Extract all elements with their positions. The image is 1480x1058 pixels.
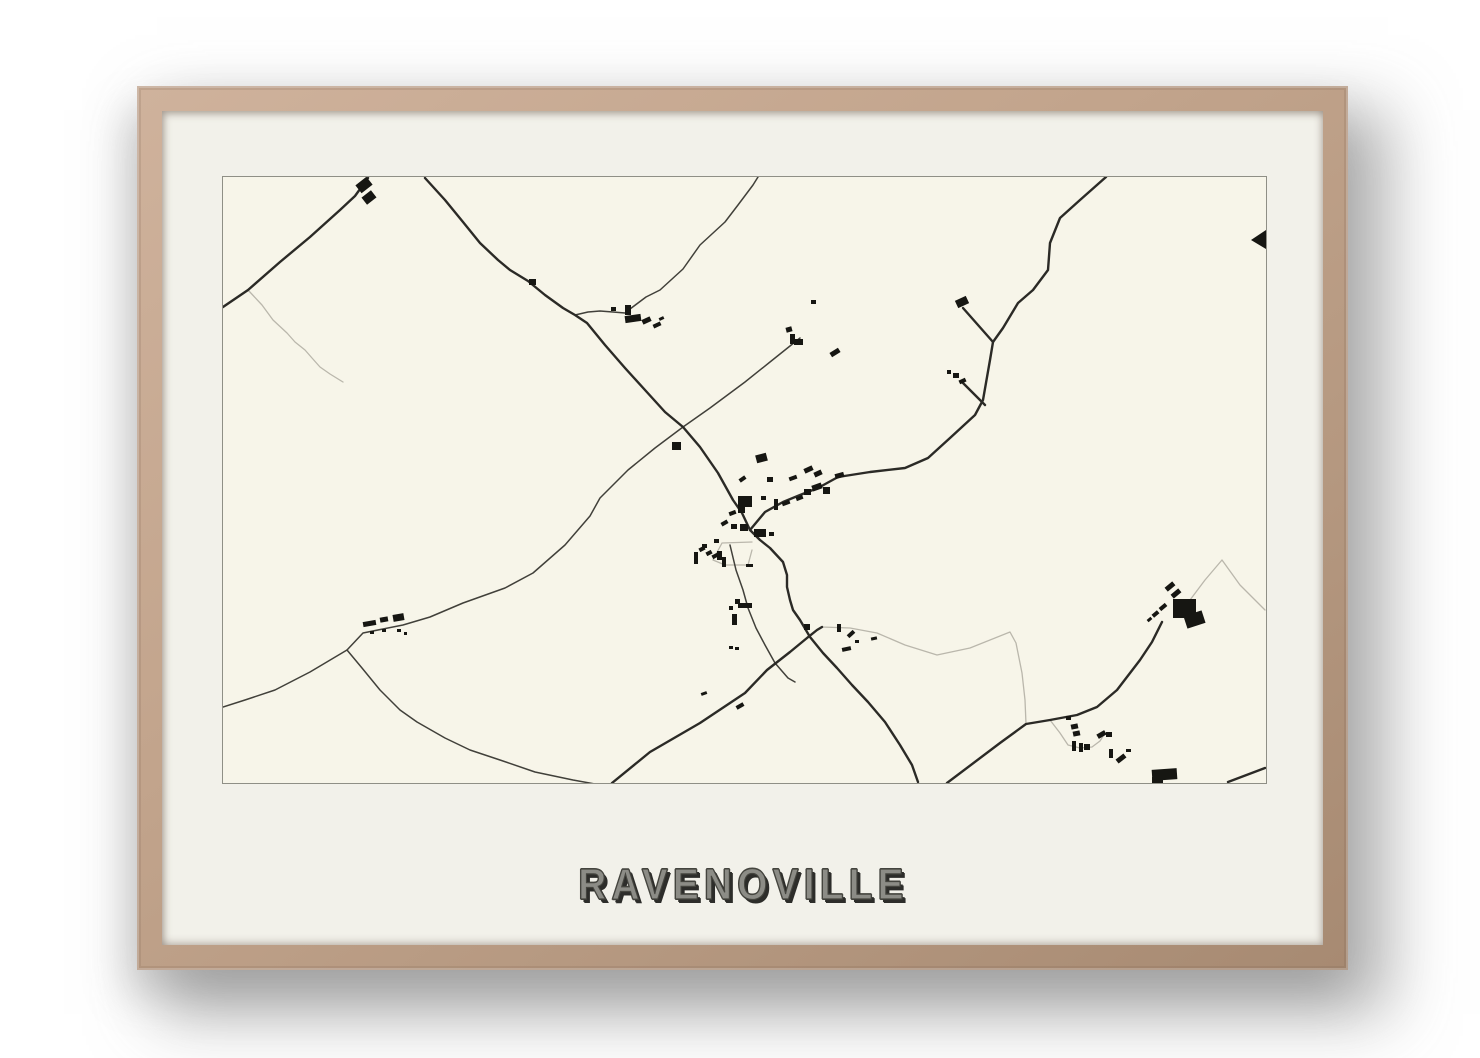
map-panel — [222, 176, 1267, 784]
poster-title: RAVENOVILLE — [285, 860, 1203, 910]
page-background: { "poster": { "title": "RAVENOVILLE", "f… — [0, 0, 1480, 1058]
town-map-svg — [223, 177, 1266, 783]
poster-frame: RAVENOVILLE — [137, 86, 1348, 970]
poster-mat: RAVENOVILLE — [162, 111, 1323, 945]
